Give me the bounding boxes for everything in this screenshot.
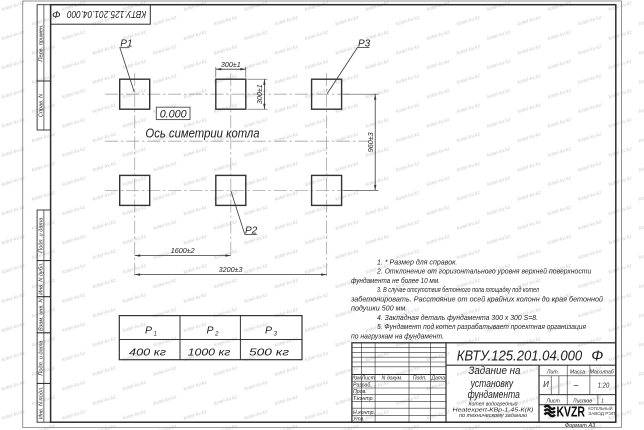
svg-text:5. Фундамент под котел разраб: 5. Фундамент под котел разрабатывает про… bbox=[377, 322, 586, 331]
svg-text:Утв.: Утв. bbox=[353, 417, 365, 423]
svg-text:KVZR: KVZR bbox=[557, 404, 586, 420]
svg-text:960±3: 960±3 bbox=[366, 132, 375, 152]
svg-text:400 кг: 400 кг bbox=[129, 346, 166, 358]
svg-text:3200±3: 3200±3 bbox=[219, 265, 243, 274]
svg-text:по техническому заданию: по техническому заданию bbox=[459, 413, 528, 419]
svg-text:Формат А3: Формат А3 bbox=[565, 423, 596, 429]
svg-text:Инв. N подл.: Инв. N подл. bbox=[39, 386, 45, 419]
svg-text:подушки 500 мм.: подушки 500 мм. bbox=[351, 304, 407, 313]
svg-text:Ф: Ф bbox=[52, 8, 60, 20]
svg-text:1: 1 bbox=[601, 398, 604, 404]
svg-text:Масса: Масса bbox=[570, 370, 585, 376]
svg-text:КВТУ.125.201.04.000: КВТУ.125.201.04.000 bbox=[457, 347, 583, 364]
svg-text:Лист: Лист bbox=[361, 376, 376, 382]
svg-text:Ф: Ф bbox=[591, 347, 603, 364]
svg-text:Подп. и дата: Подп. и дата bbox=[39, 341, 45, 376]
svg-text:Инв. N дубл.: Инв. N дубл. bbox=[39, 262, 45, 294]
svg-text:1. * Размер для справок.: 1. * Размер для справок. bbox=[377, 258, 457, 267]
svg-text:Т.контр.: Т.контр. bbox=[353, 396, 374, 402]
svg-text:Ось симетрии котла: Ось симетрии котла bbox=[145, 126, 259, 140]
svg-text:–: – bbox=[573, 380, 579, 389]
svg-text:1600±2: 1600±2 bbox=[171, 246, 195, 255]
svg-text:Дата: Дата bbox=[430, 376, 445, 382]
svg-text:Взам. инв. N: Взам. инв. N bbox=[39, 297, 45, 331]
svg-text:Лит.: Лит. bbox=[546, 370, 559, 376]
svg-text:N докум.: N докум. bbox=[382, 376, 403, 382]
svg-text:КВТУ.125.201.04.000: КВТУ.125.201.04.000 bbox=[67, 8, 146, 20]
svg-text:Задание на: Задание на bbox=[468, 365, 520, 377]
svg-text:0.000: 0.000 bbox=[160, 109, 188, 121]
svg-text:Справ. N: Справ. N bbox=[39, 93, 45, 117]
svg-text:1000 кг: 1000 кг bbox=[188, 346, 231, 358]
svg-text:забетонировать. Расстояние от: забетонировать. Расстояние от осей крайн… bbox=[350, 294, 604, 303]
svg-text:Пров.: Пров. bbox=[353, 389, 367, 395]
svg-text:Подп.: Подп. bbox=[413, 376, 427, 382]
svg-text:3. В случае отсутствия бетонн: 3. В случае отсутствия бетонного пола пл… bbox=[377, 285, 540, 294]
svg-text:4. Закладная деталь фундамент: 4. Закладная деталь фундамента 300 х 300… bbox=[377, 313, 538, 322]
svg-text:КОТЕЛЬНЫЙ: КОТЕЛЬНЫЙ bbox=[588, 404, 612, 411]
svg-text:Подп. и дата: Подп. и дата bbox=[39, 218, 45, 253]
svg-text:ЗАВОД РЭП: ЗАВОД РЭП bbox=[588, 411, 615, 416]
svg-text:1:20: 1:20 bbox=[598, 381, 610, 390]
svg-text:Масштаб: Масштаб bbox=[590, 370, 615, 376]
svg-text:Изм.: Изм. bbox=[351, 376, 362, 382]
svg-text:500 кг: 500 кг bbox=[249, 346, 289, 358]
svg-text:Н.контр.: Н.контр. bbox=[353, 410, 375, 416]
svg-text:300±1: 300±1 bbox=[255, 84, 264, 104]
svg-text:300±1: 300±1 bbox=[221, 60, 241, 69]
svg-text:Разраб.: Разраб. bbox=[353, 383, 372, 389]
svg-text:фундамента не более 10 мм.: фундамента не более 10 мм. bbox=[351, 276, 440, 285]
svg-text:по нагрузкам на фундамент.: по нагрузкам на фундамент. bbox=[351, 331, 444, 340]
svg-text:И: И bbox=[543, 380, 549, 389]
svg-text:2. Отклонение от горизонтальн: 2. Отклонение от горизонтального уровня … bbox=[376, 267, 592, 276]
svg-text:Перв. примен.: Перв. примен. bbox=[39, 24, 45, 61]
svg-text:фундамента: фундамента bbox=[468, 389, 520, 401]
